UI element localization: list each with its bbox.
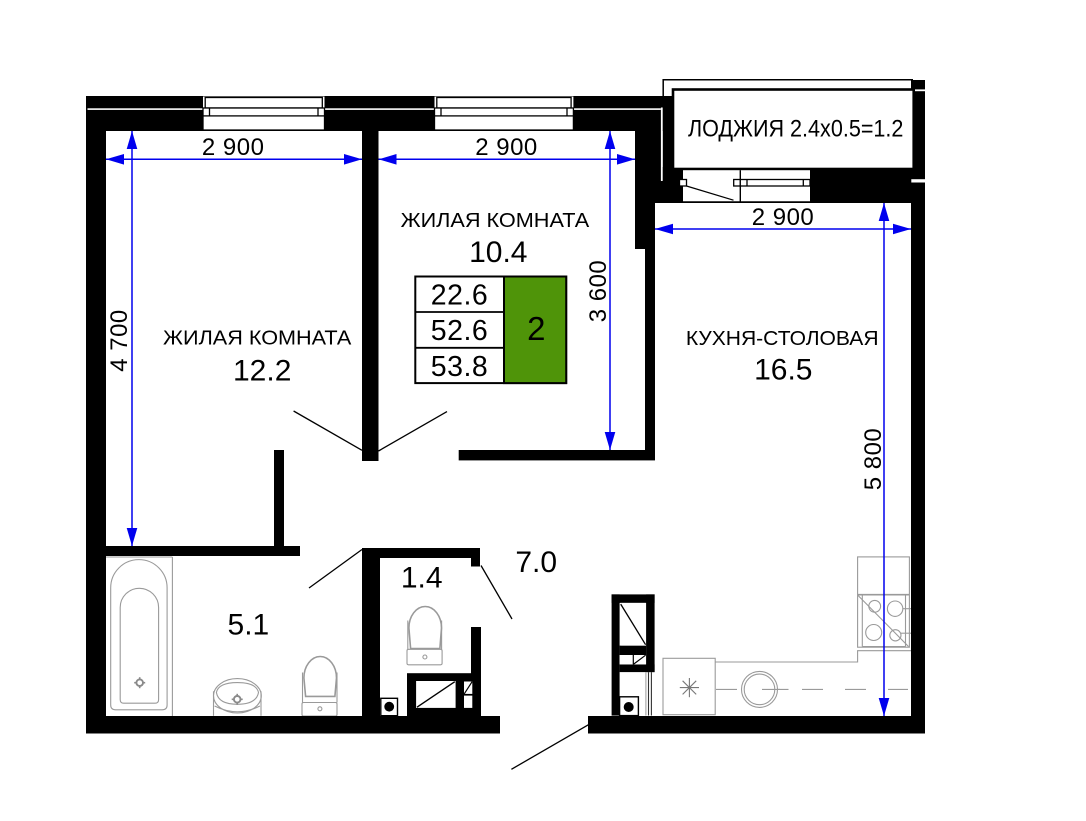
svg-text:2 900: 2 900 <box>752 204 815 231</box>
svg-text:ЛОДЖИЯ 2.4х0.5=1.2: ЛОДЖИЯ 2.4х0.5=1.2 <box>688 115 904 142</box>
svg-text:ЖИЛАЯ КОМНАТА: ЖИЛАЯ КОМНАТА <box>163 328 352 350</box>
svg-text:3 600: 3 600 <box>585 260 612 323</box>
svg-text:2: 2 <box>527 310 545 347</box>
svg-text:12.2: 12.2 <box>233 354 291 387</box>
svg-text:53.8: 53.8 <box>431 351 488 383</box>
svg-text:5 800: 5 800 <box>860 428 887 491</box>
svg-text:2 900: 2 900 <box>202 134 265 161</box>
svg-text:16.5: 16.5 <box>754 354 812 387</box>
svg-text:7.0: 7.0 <box>515 546 557 579</box>
svg-text:ЖИЛАЯ КОМНАТА: ЖИЛАЯ КОМНАТА <box>401 210 590 232</box>
svg-text:22.6: 22.6 <box>431 279 488 311</box>
svg-text:КУХНЯ-СТОЛОВАЯ: КУХНЯ-СТОЛОВАЯ <box>686 328 879 350</box>
svg-text:1.4: 1.4 <box>401 562 443 595</box>
svg-text:2 900: 2 900 <box>475 134 538 161</box>
svg-text:4 700: 4 700 <box>106 309 133 372</box>
svg-text:52.6: 52.6 <box>431 315 488 347</box>
svg-text:10.4: 10.4 <box>469 236 527 269</box>
svg-text:5.1: 5.1 <box>228 608 270 641</box>
